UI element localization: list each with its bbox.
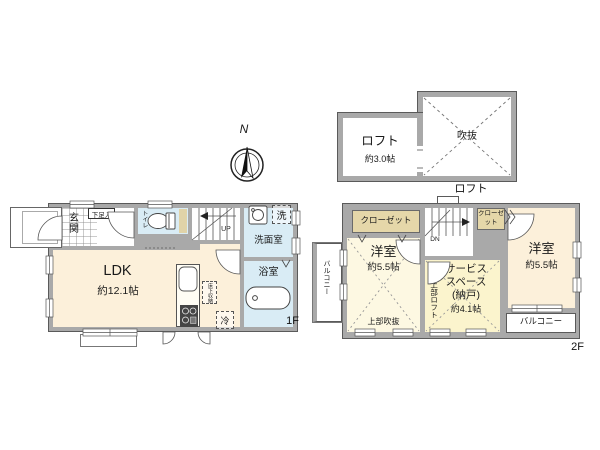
bedroom-east-size: 約5.5帖	[508, 261, 575, 272]
terrace-deck	[80, 334, 137, 347]
floor2-caption: 2F	[540, 341, 584, 354]
service-space-size: 約4.1帖	[432, 304, 500, 314]
service-space-name-1: サービス	[432, 263, 500, 275]
toilet-label: トイレ	[140, 210, 147, 228]
compass-north-label: N	[230, 123, 258, 137]
ldk-floor-stair-opening	[200, 244, 240, 252]
compass-icon	[231, 147, 263, 181]
bathroom-label: 浴室	[244, 267, 293, 279]
stairs2-dn-label: DN	[426, 236, 444, 243]
service-space-name-3: (納戸)	[432, 289, 500, 301]
washer-mark-box: 洗	[272, 205, 291, 224]
loft-room-label: ロフト	[343, 134, 417, 148]
refrigerator-label: 冷	[220, 314, 229, 327]
ldk-size-label: 約12.1帖	[68, 285, 168, 297]
shoe-cabinet-box: 下足入	[88, 208, 115, 219]
loft-window	[417, 146, 423, 172]
stairs1-floor	[192, 208, 240, 240]
toilet-cabinet	[179, 209, 187, 233]
floor-plan-canvas: ロフト 約3.0帖 吹抜 ロフト N 下足入 洗 床下収納 冷 玄関 トイレ U…	[0, 0, 600, 450]
service-space-note: 上部ロフト	[429, 281, 438, 319]
shoe-cabinet-label: 下足入	[92, 209, 112, 219]
balcony-west-label: バルコニー	[322, 260, 330, 295]
stairs1-up-label: UP	[216, 226, 236, 234]
closet-west-label: クローゼット	[352, 216, 420, 226]
washer-mark-label: 洗	[277, 207, 287, 222]
ldk-label: LDK	[75, 263, 160, 280]
kitchen-counter	[176, 264, 200, 327]
washroom-label: 洗面室	[244, 236, 293, 247]
loft-plan-caption: ロフト	[436, 183, 506, 196]
hall2-floor	[425, 208, 473, 256]
bedroom-west-size: 約5.5帖	[347, 263, 420, 274]
bedroom-east-label: 洋室	[508, 242, 575, 257]
floor1-caption: 1F	[255, 315, 299, 328]
entrance-label: 玄関	[66, 212, 78, 234]
service-space-name-2: スペース	[432, 276, 500, 288]
bedroom-west-label: 洋室	[347, 245, 420, 260]
loft-void-label: 吹抜	[423, 131, 511, 143]
balcony-south-label: バルコニー	[506, 317, 576, 327]
closet-east-label: クローゼット	[478, 209, 504, 227]
underfloor-storage-label: 床下収納	[207, 283, 212, 303]
underfloor-storage-box: 床下収納	[202, 281, 217, 304]
bedroom-east-floor	[508, 208, 575, 308]
loft-room-size: 約3.0帖	[343, 154, 417, 164]
refrigerator-box: 冷	[216, 311, 234, 329]
entrance-porch-step	[22, 211, 58, 244]
bedroom-west-note: 上部吹抜	[347, 317, 420, 326]
stairs2-top-window	[437, 196, 459, 204]
